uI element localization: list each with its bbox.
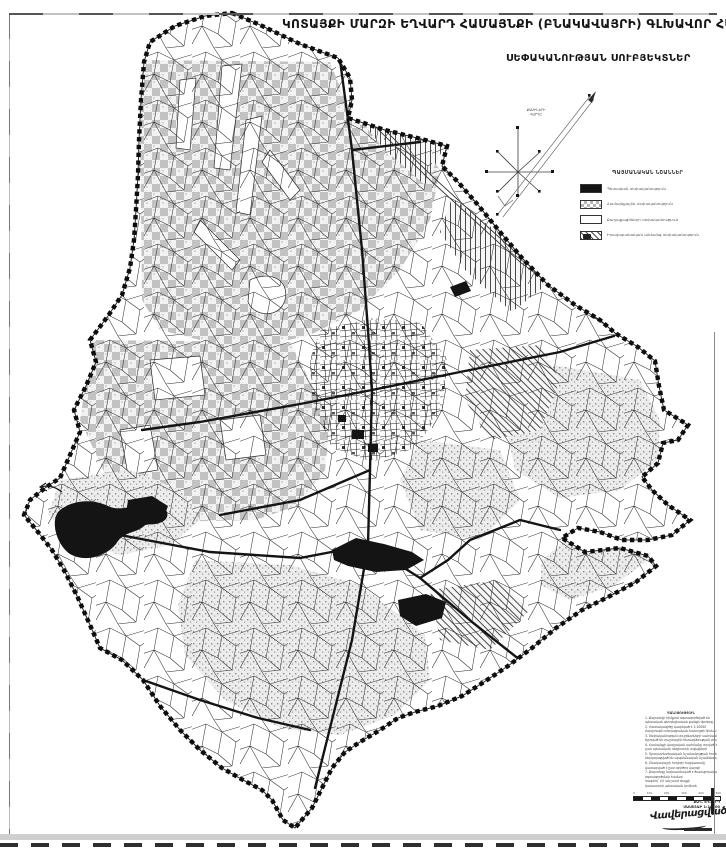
- list-item: 7. Քարտեզը նախատեսված է ծառայողական: [645, 770, 717, 775]
- compass-label-line1: ՔԱՄԻՆԵՐԻ: [527, 108, 546, 112]
- scan-edge-left: [9, 13, 10, 837]
- legend-label: Պետական սեփականություն: [607, 187, 666, 191]
- legend-row-legal-entities: Իրավաբանական անձանց սեփականություն: [580, 231, 715, 240]
- scan-edge-right-dark: [711, 788, 714, 814]
- legend-row-state: Պետական սեփականություն: [580, 184, 715, 193]
- legend-row-citizens: Քաղաքացիների սեփականություն: [580, 215, 715, 224]
- list-item: 500: [716, 792, 721, 796]
- list-item: 0: [633, 792, 635, 796]
- scan-edge-top: [9, 13, 717, 15]
- cadastral-map: ՔԱՄԻՆԵՐԻ ՎԱՐԴԸ: [0, 0, 726, 850]
- list-item: 300: [681, 792, 686, 796]
- legend-swatch-blob: [583, 234, 591, 239]
- map-subtitle: ՍԵՓԱԿԱՆՈՒԹՅԱՆ ՍՈՒԲՅԵԿՏՆԵՐ: [506, 53, 716, 64]
- legend-label: Իրավաբանական անձանց սեփականություն: [607, 233, 699, 237]
- legend-swatch-white: [580, 215, 602, 224]
- compass-label-line2: ՎԱՐԴԸ: [530, 113, 542, 117]
- map-interior: [0, 0, 726, 850]
- list-item: 200: [664, 792, 669, 796]
- scanned-map-page: ՔԱՄԻՆԵՐԻ ՎԱՐԴԸ ԿՈՏԱՅՔԻ ՄԱՐԶԻ ԵՂՎԱՐԴ ՀԱՄԱ…: [0, 0, 726, 850]
- list-item: պետական գեոդեզիական ցանցի կետերը: [645, 720, 717, 725]
- signature-dash: [684, 828, 712, 831]
- legend-swatch-hatched: [580, 231, 602, 240]
- legend-row-community: Համայնքային սեփականություն: [580, 200, 715, 209]
- notes-block: ԾԱՆՈԹՈՒԹՅՈՒՆ1. Քարտեզի հիմքում օգտագործվ…: [645, 711, 717, 788]
- legend-swatch-checker: [580, 200, 602, 209]
- list-item: 100: [647, 792, 652, 796]
- legend-label: Համայնքային սեփականություն: [607, 202, 673, 206]
- scan-edge-bottom-band: [0, 834, 726, 840]
- map-title: ԿՈՏԱՅՔԻ ՄԱՐԶԻ ԵՂՎԱՐԴ ՀԱՄԱՅՆՔԻ (ԲՆԱԿԱՎԱՅՐ…: [282, 17, 722, 31]
- scan-edge-right: [714, 332, 715, 834]
- list-item: 400: [698, 792, 703, 796]
- legend-label: Քաղաքացիների սեփականություն: [607, 218, 678, 222]
- legend: ՊԱՅՄԱՆԱԿԱՆ ՆՇԱՆՆԵՐ Պետական սեփականությու…: [580, 170, 715, 246]
- legend-swatch-solid-black: [580, 184, 602, 193]
- legend-title: ՊԱՅՄԱՆԱԿԱՆ ՆՇԱՆՆԵՐ: [580, 170, 715, 176]
- scan-edge-bottom-dashes: [0, 843, 726, 847]
- list-item: կադաստրի պետական կոմիտե: [645, 784, 717, 789]
